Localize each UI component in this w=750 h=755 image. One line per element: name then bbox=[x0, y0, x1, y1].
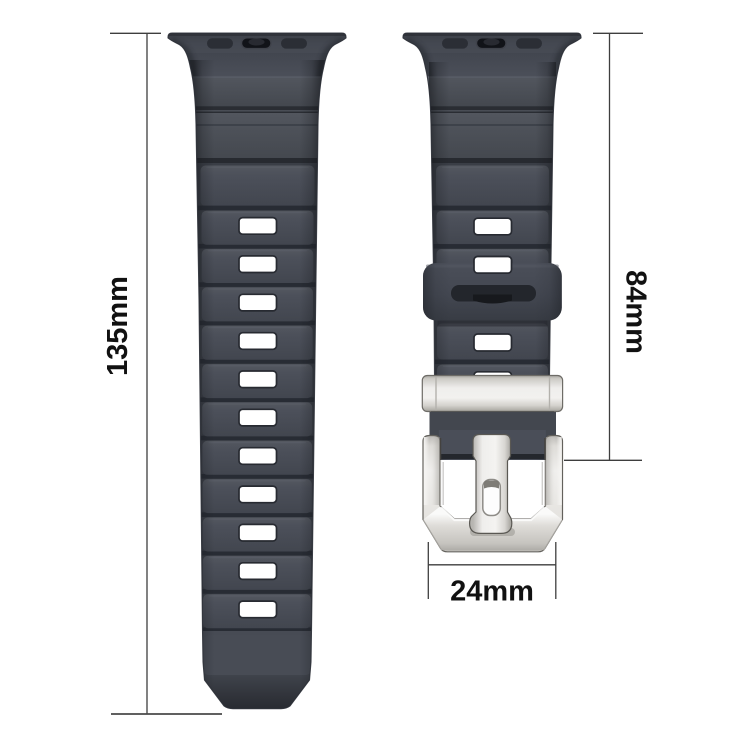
svg-text:24mm: 24mm bbox=[450, 576, 534, 608]
svg-text:135mm: 135mm bbox=[102, 276, 134, 376]
svg-text:84mm: 84mm bbox=[620, 270, 652, 354]
